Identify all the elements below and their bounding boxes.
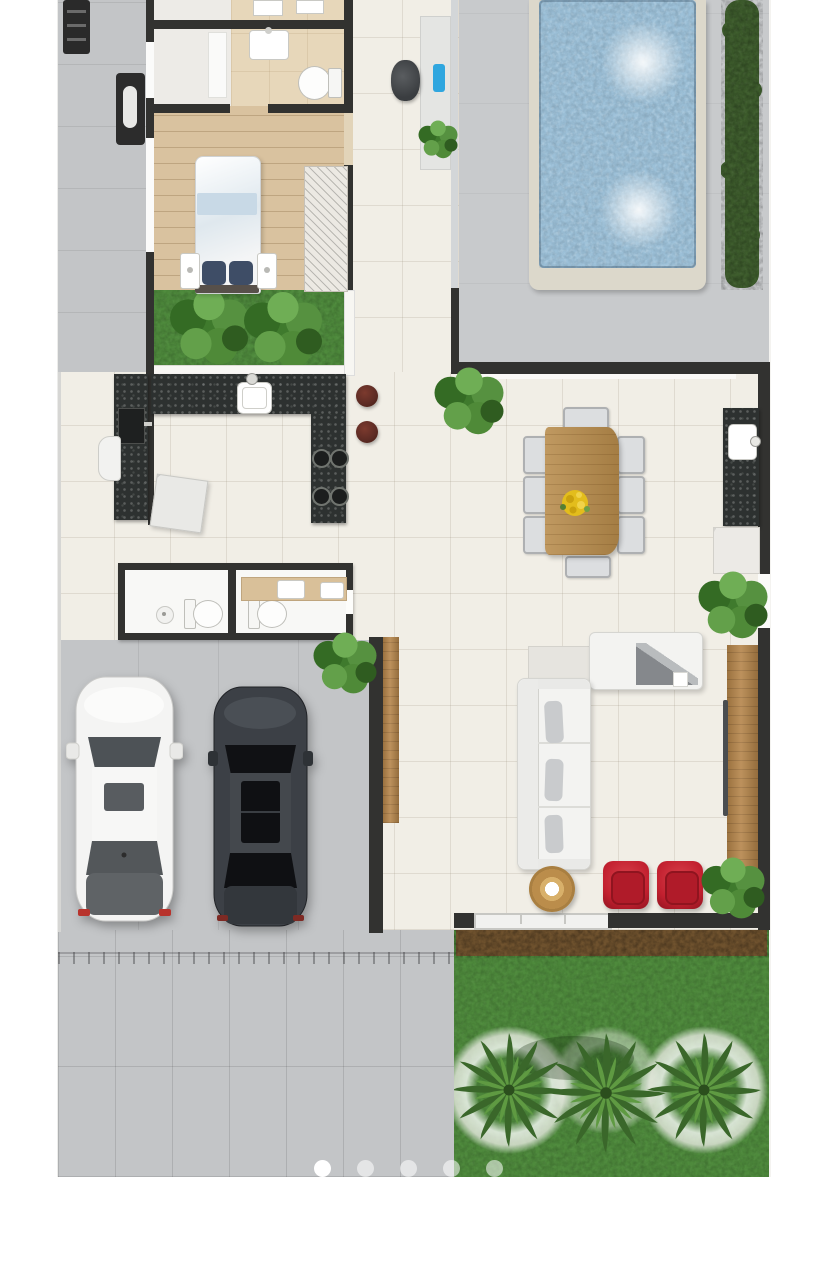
entry-wood-deck xyxy=(383,637,399,823)
carousel-dot-1[interactable] xyxy=(314,1160,331,1177)
sofa-armrest xyxy=(538,679,590,689)
tv-panel xyxy=(727,645,758,869)
dining-table xyxy=(545,427,619,555)
bbq-grill xyxy=(391,60,420,101)
ac-unit xyxy=(63,0,90,54)
gourmet-faucet xyxy=(750,436,761,447)
marble-cabinet xyxy=(713,527,760,574)
carousel-dot-3[interactable] xyxy=(400,1160,417,1177)
laundry-divider-wall xyxy=(148,20,353,29)
washing-machine xyxy=(98,436,121,481)
kitchen-island-table xyxy=(150,474,209,534)
chaise-daybed xyxy=(589,632,703,690)
carousel-dot-2[interactable] xyxy=(357,1160,374,1177)
suite-east-wall xyxy=(344,0,353,113)
nightstand xyxy=(180,253,200,289)
side-hedge xyxy=(721,0,763,290)
bedroom-window xyxy=(146,138,154,252)
front-gate-line xyxy=(58,952,454,964)
lamp xyxy=(187,267,193,273)
vanity-basin xyxy=(277,580,305,599)
door-pane-divider xyxy=(564,915,566,924)
bed xyxy=(195,156,261,294)
ensuite-vanity xyxy=(249,30,289,60)
nightstand xyxy=(257,253,277,289)
dining-chair xyxy=(617,436,645,474)
stove-burner xyxy=(312,487,331,506)
bar-stool xyxy=(356,421,378,443)
ac-fin xyxy=(67,38,86,41)
window xyxy=(146,42,154,98)
gray-blanket xyxy=(636,643,698,685)
dining-chair xyxy=(617,516,645,554)
wardrobe xyxy=(304,166,348,292)
lamp xyxy=(264,267,270,273)
poolside-bench xyxy=(420,16,451,170)
tv-screen xyxy=(723,700,728,816)
ac-fin xyxy=(67,24,86,27)
south-wall xyxy=(608,913,769,928)
laundry-appliance xyxy=(296,0,324,14)
drain-center xyxy=(162,612,166,616)
bar-stool xyxy=(356,385,378,407)
south-wall xyxy=(454,913,474,928)
toilet-bowl xyxy=(193,600,223,628)
garage-east-wall xyxy=(369,637,383,933)
kitchen-faucet xyxy=(246,373,258,385)
bed-headboard xyxy=(195,285,259,293)
bathroom-door-opening xyxy=(346,590,353,614)
blanket-tag xyxy=(673,672,688,687)
backyard-garden xyxy=(454,930,769,1177)
bathroom-vanity xyxy=(241,577,347,601)
bedroom-north-wall xyxy=(148,104,230,113)
carousel-dot-4[interactable] xyxy=(443,1160,460,1177)
driveway xyxy=(58,930,454,1177)
carousel-dots xyxy=(314,1160,503,1177)
bed-blanket xyxy=(197,193,257,215)
service-sink xyxy=(118,408,145,444)
dining-chair xyxy=(617,476,645,514)
shower-drain xyxy=(156,606,174,624)
kitchen-counter-right xyxy=(311,414,346,523)
living-glass-door xyxy=(474,913,612,930)
glass-wall xyxy=(451,0,458,288)
carousel-dot-5[interactable] xyxy=(486,1160,503,1177)
sofa xyxy=(517,678,591,870)
floorplan-photo xyxy=(57,0,771,1177)
bedroom-north-wall xyxy=(268,104,353,113)
laundry-appliance xyxy=(253,0,283,16)
dark-car xyxy=(208,683,313,930)
kitchen-sink xyxy=(237,382,272,414)
sofa-pillow xyxy=(544,701,564,744)
sofa-pillow xyxy=(544,815,563,854)
vanity-basin xyxy=(320,582,344,599)
service-faucet xyxy=(144,422,152,426)
ac-fan xyxy=(123,86,137,128)
bedroom-garden-strip xyxy=(148,290,353,374)
bed-pillow xyxy=(229,261,253,285)
stove-burner xyxy=(330,487,349,506)
side-path xyxy=(58,0,148,375)
west-boundary-line xyxy=(58,372,61,932)
red-armchair xyxy=(603,861,649,909)
bathrooms-block xyxy=(118,563,353,640)
toilet-bowl xyxy=(257,600,287,628)
armchair-seat xyxy=(665,871,699,905)
pool-towel xyxy=(433,64,445,92)
red-armchair xyxy=(657,861,703,909)
stove-burner xyxy=(312,449,331,468)
door-pane-divider xyxy=(520,915,522,924)
ac-unit xyxy=(116,73,145,145)
cushion-seam xyxy=(538,742,590,744)
sofa-backrest xyxy=(518,679,539,869)
window-sill-line xyxy=(456,374,736,379)
garden-sill xyxy=(344,290,355,376)
screen xyxy=(0,0,831,1280)
swimming-pool xyxy=(539,0,696,268)
ac-fin xyxy=(67,10,86,13)
stove-burner xyxy=(330,449,349,468)
cushion-seam xyxy=(538,806,590,808)
shower-screen xyxy=(208,32,227,98)
ensuite-toilet-tank xyxy=(328,68,342,98)
armchair-seat xyxy=(611,871,645,905)
north-wall xyxy=(453,362,769,374)
east-door-opening xyxy=(758,574,770,628)
bathroom-divider-wall xyxy=(228,567,236,637)
white-car xyxy=(66,673,183,925)
dining-chair xyxy=(565,556,611,578)
east-wall xyxy=(758,628,770,930)
sofa-pillow xyxy=(544,759,563,802)
faucet xyxy=(265,27,272,34)
sink-basin xyxy=(242,387,267,409)
round-coffee-table xyxy=(529,866,575,912)
ensuite-toilet-bowl xyxy=(298,66,331,100)
bed-pillow xyxy=(202,261,226,285)
suite-door-opening xyxy=(344,113,353,165)
